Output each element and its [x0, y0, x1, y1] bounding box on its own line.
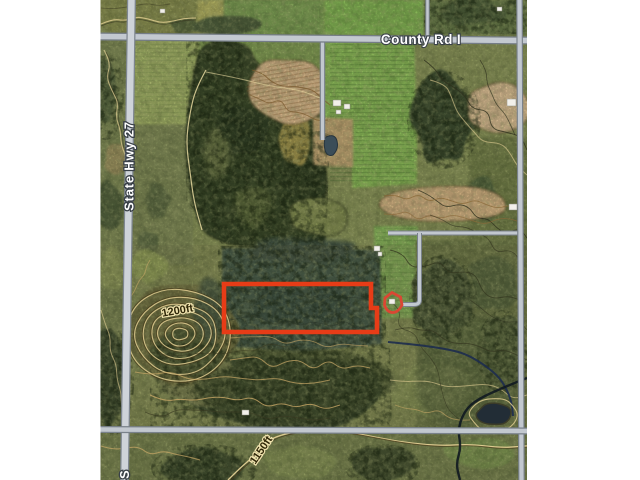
svg-text:State Hwy 27: State Hwy 27	[122, 121, 137, 211]
svg-text:County Rd I: County Rd I	[381, 32, 461, 47]
svg-text:S: S	[117, 470, 132, 479]
